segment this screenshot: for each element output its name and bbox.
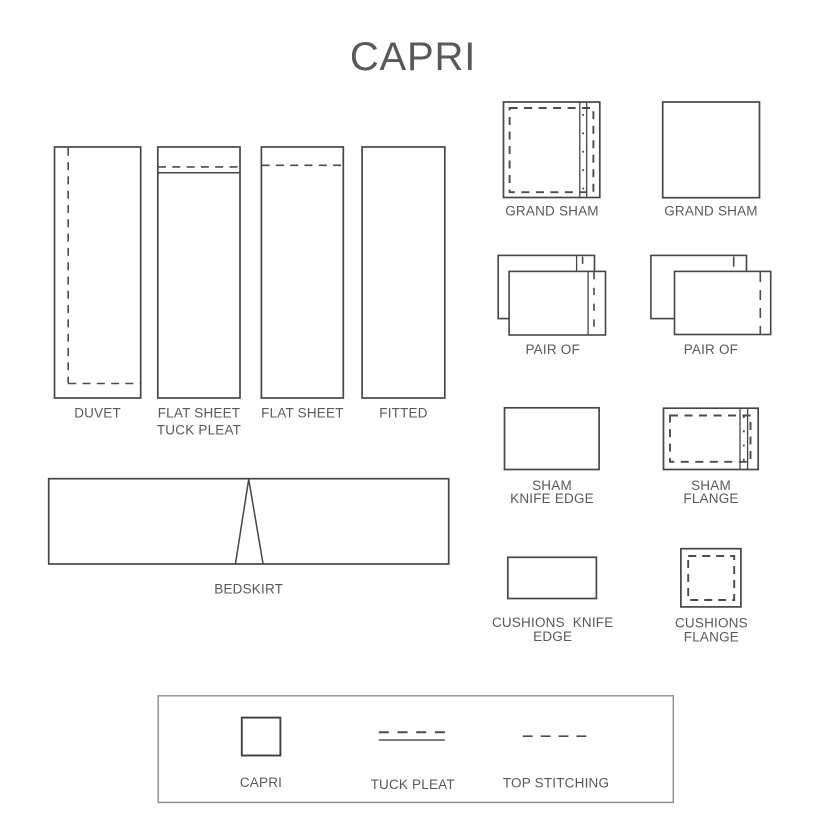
svg-text:KNIFE EDGE: KNIFE EDGE xyxy=(510,491,594,506)
svg-text:FLANGE: FLANGE xyxy=(684,629,739,644)
svg-text:CAPRI: CAPRI xyxy=(240,775,282,790)
svg-text:FLAT SHEET: FLAT SHEET xyxy=(261,406,344,421)
svg-text:CUSHIONS: CUSHIONS xyxy=(675,615,748,630)
svg-text:FLANGE: FLANGE xyxy=(683,491,738,506)
svg-text:FLAT SHEET: FLAT SHEET xyxy=(158,406,241,421)
svg-text:CUSHIONS KNIFE: CUSHIONS KNIFE xyxy=(492,615,614,630)
svg-text:PAIR OF: PAIR OF xyxy=(525,342,579,357)
svg-text:DUVET: DUVET xyxy=(74,406,121,421)
svg-text:PAIR OF: PAIR OF xyxy=(684,342,738,357)
svg-text:TUCK PLEAT: TUCK PLEAT xyxy=(157,423,241,438)
svg-text:TUCK PLEAT: TUCK PLEAT xyxy=(371,777,455,792)
svg-text:EDGE: EDGE xyxy=(533,629,572,644)
svg-text:TOP STITCHING: TOP STITCHING xyxy=(503,776,609,791)
svg-text:GRAND SHAM: GRAND SHAM xyxy=(664,204,758,219)
svg-text:BEDSKIRT: BEDSKIRT xyxy=(214,582,283,597)
svg-text:FITTED: FITTED xyxy=(379,406,427,421)
svg-text:CAPRI: CAPRI xyxy=(350,35,476,79)
svg-text:GRAND SHAM: GRAND SHAM xyxy=(505,204,599,219)
